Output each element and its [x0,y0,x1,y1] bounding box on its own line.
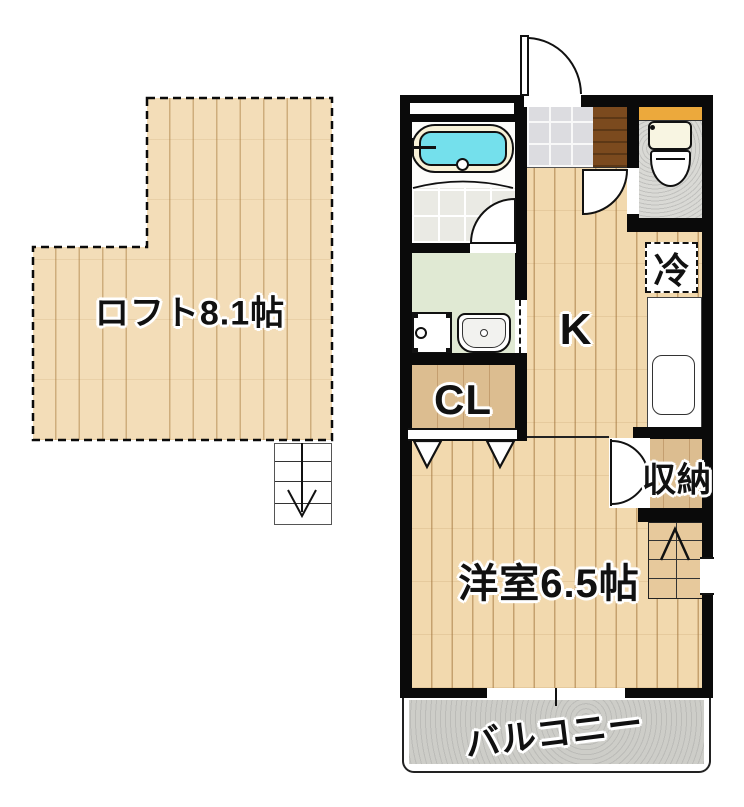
loft-stairs [274,443,332,525]
wall-storage-stairs [638,508,713,522]
stair-tread [275,481,331,482]
closet-label: CL [434,376,492,424]
stair-center-line [676,523,677,598]
wall-left-column [515,95,527,441]
washer-drain [415,327,427,339]
wall-toilet-bottom [627,218,713,232]
wall-right [702,95,713,698]
washroom-sliding-door [515,300,527,353]
toilet-door-opening [627,168,639,214]
kitchen-sink [652,355,695,415]
wall-left [400,95,412,698]
loft-floor-upper [147,98,332,440]
entrance-door-leaf [520,35,529,96]
vanity-faucet-dot [480,329,488,337]
bathroom-tile-floor [412,188,515,243]
side-window [700,557,714,595]
entrance-door-arc [529,38,581,94]
wall-wash-closet [400,353,527,365]
bath-faucet-handle [414,146,436,149]
sliding-door-dash-line [519,300,521,353]
washer-pan-corner [446,312,452,318]
entrance-opening [524,95,581,107]
toilet-button [650,125,655,130]
bathroom-door-opening [470,243,516,253]
refrigerator-label: 冷 [653,242,690,294]
main-stairs [648,522,704,599]
entry-tile-floor [527,107,593,168]
western-room-label: 洋室6.5帖 [458,551,640,609]
stair-tread [275,461,331,462]
toilet-seat-hinge [656,158,685,160]
bathtub-drain [456,158,469,171]
bathroom-window [410,103,514,114]
loft-floor-left [33,247,147,440]
loft-label: ロフト8.1帖 [95,286,285,335]
entry-step [593,107,627,168]
stair-tread [275,503,331,504]
balcony-sliding-window [487,688,625,699]
storage-label: 収納 [642,453,712,502]
floor-plan: ロフト8.1帖 K CL 冷 収納 洋室6.5帖 バルコニー [0,0,744,807]
washer-pan-corner [412,312,418,318]
closet-door-track [408,428,517,441]
kitchen-label: K [560,305,593,355]
